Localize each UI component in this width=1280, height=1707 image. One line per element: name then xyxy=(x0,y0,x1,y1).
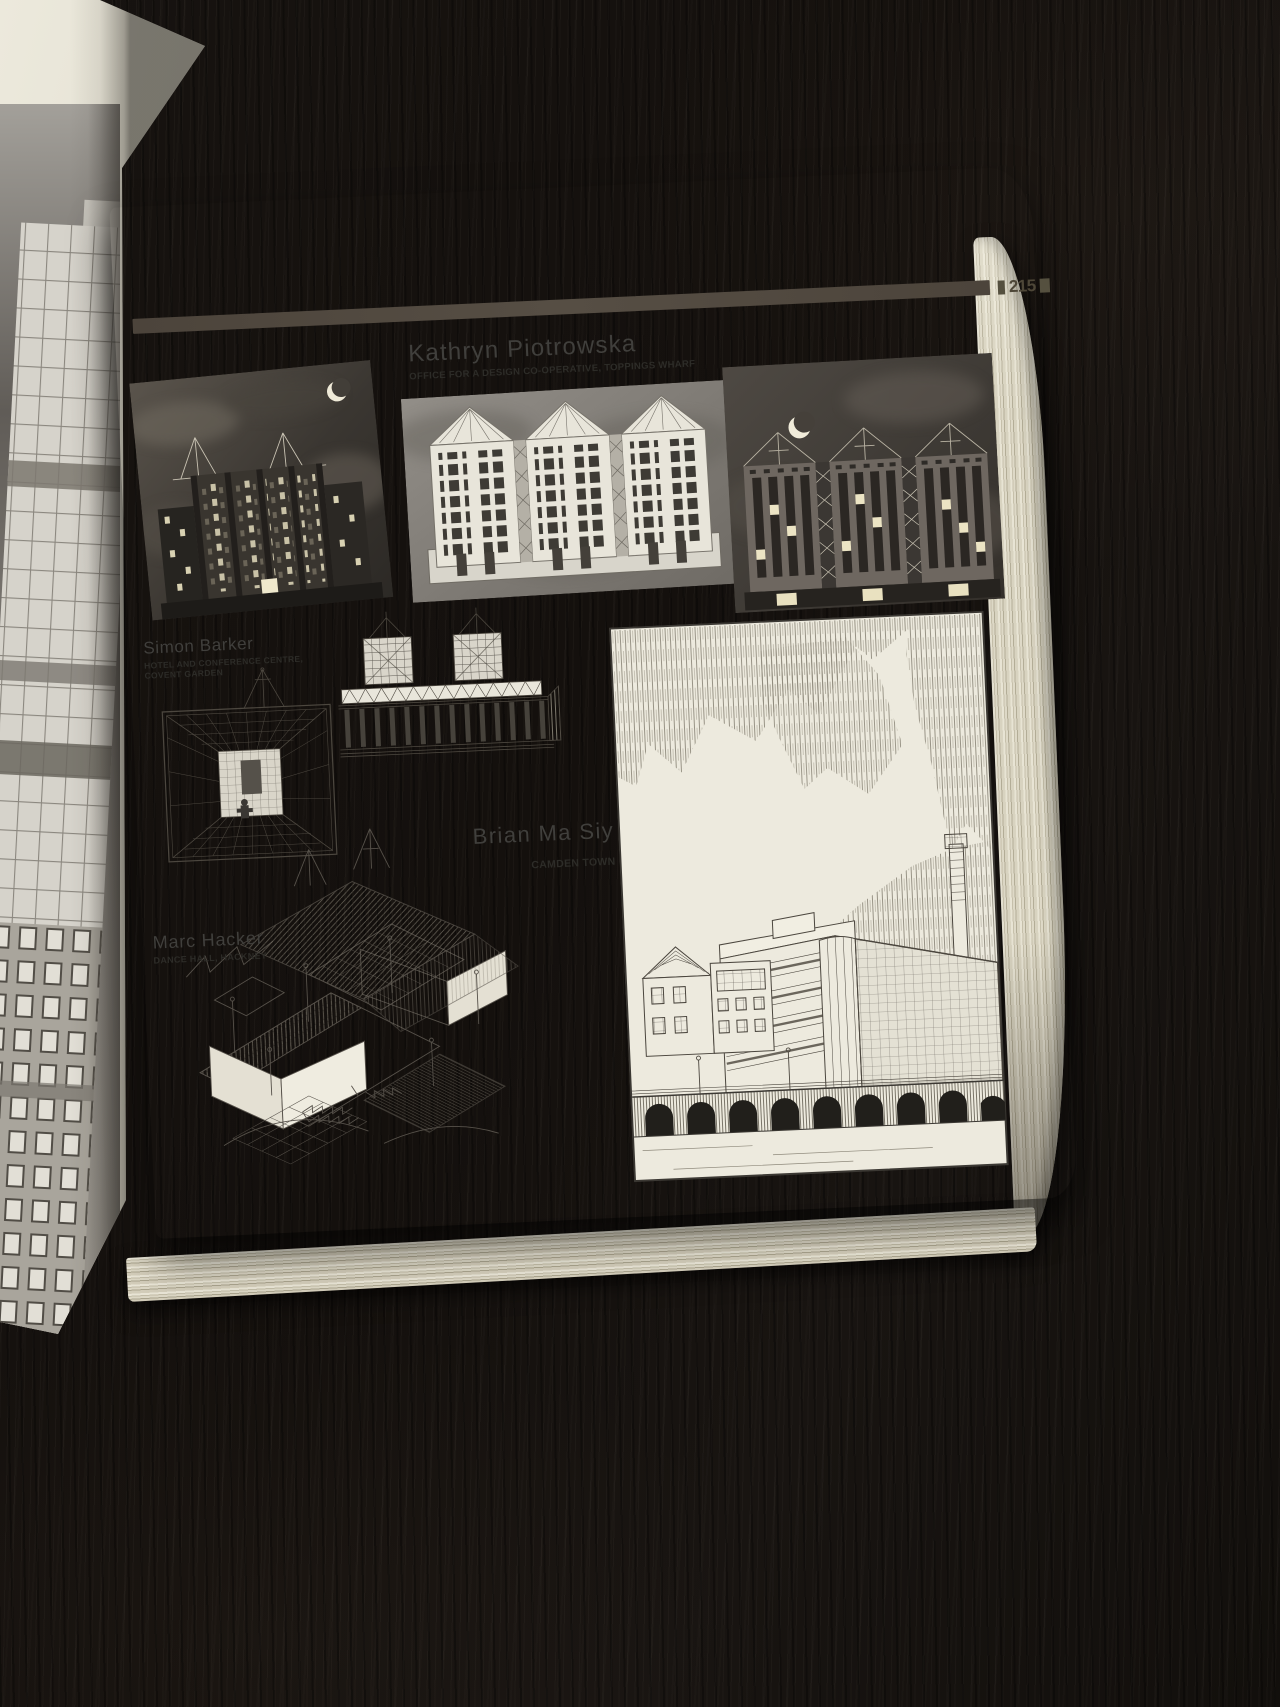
figure-night-elevation-right xyxy=(722,353,1005,613)
right-page: 215 Kathryn Piotrowska OFFICE FOR A DESI… xyxy=(109,166,1077,1239)
figure-night-elevation-left xyxy=(129,360,393,620)
artist-name: Marc Hacker xyxy=(152,928,267,954)
page-number-text: 215 xyxy=(1008,276,1036,297)
figure-dance-hall-axonometric xyxy=(138,779,593,1218)
figure-hotel-street-elevation xyxy=(334,600,563,768)
figure-night-elevation-centre xyxy=(401,380,741,603)
header-rule-bar xyxy=(132,280,990,334)
figure-camden-town-perspective xyxy=(609,611,1010,1183)
artist-heading-piotrowska: Kathryn Piotrowska OFFICE FOR A DESIGN C… xyxy=(408,327,696,382)
page-number-right-square xyxy=(1039,278,1050,292)
artist-heading-hacker: Marc Hacker DANCE HALL, HACKNEY xyxy=(152,928,267,966)
left-page-tower-photo xyxy=(0,104,120,1334)
page-number: 215 xyxy=(997,275,1050,297)
photo-of-open-book: 215 Kathryn Piotrowska OFFICE FOR A DESI… xyxy=(0,0,1280,1707)
page-number-left-square xyxy=(998,280,1006,294)
